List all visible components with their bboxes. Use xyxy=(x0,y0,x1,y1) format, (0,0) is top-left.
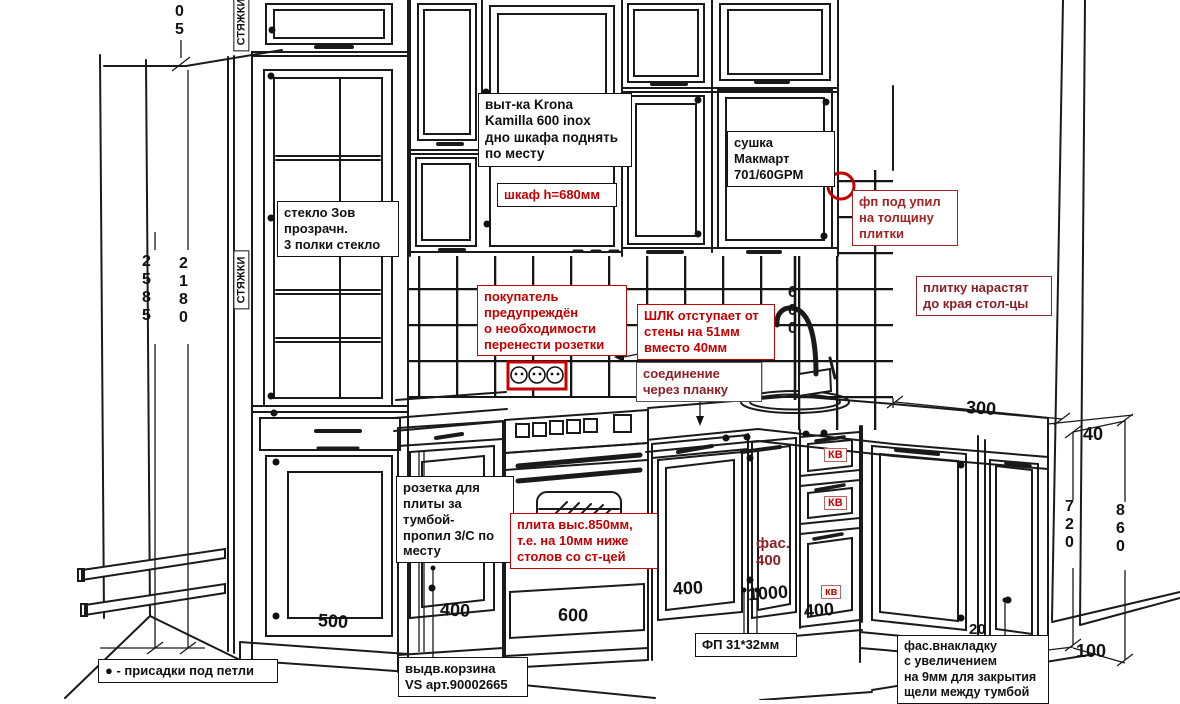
stretcher-label-bottom: СТЯЖКИ xyxy=(233,251,249,310)
note-pullout-basket: выдв.корзина VS арт.90002665 xyxy=(398,657,528,697)
note-stove-height: плита выс.850мм, т.е. на 10мм ниже столо… xyxy=(510,513,658,569)
socket-icon xyxy=(508,362,566,389)
note-shlk-offset: ШЛК отступает от стены на 51мм вместо 40… xyxy=(637,304,775,360)
note-facade-overlay: фас.внакладку с увеличением на 9мм для з… xyxy=(897,635,1049,704)
drawer-kv-2: КВ xyxy=(824,496,847,510)
dim-cab-left-width: 400 xyxy=(439,599,470,622)
label-facade-400: фас. 400 xyxy=(756,536,790,569)
note-hood: выт-ка Krona Kamilla 600 inox дно шкафа … xyxy=(478,93,632,167)
note-glass-shelves: стекло Зов прозрачн. 3 полки стекло xyxy=(277,201,399,257)
note-stove-socket: розетка для плиты за тумбой- пропил 3/С … xyxy=(396,476,514,563)
dim-cab-right-width: 400 xyxy=(672,577,703,600)
dim-total-left: 2585 xyxy=(140,253,153,325)
note-fp-trim: фп под упил на толщину плитки xyxy=(852,190,958,246)
note-buyer-warning: покупатель предупреждён о необходимости … xyxy=(477,285,627,356)
drawer-kv-3: кв xyxy=(821,585,841,599)
drawer-kv-1: КВ xyxy=(824,448,847,462)
note-fp-profile: ФП 31*32мм xyxy=(695,633,797,657)
note-dryer: сушка Макмарт 701/60GPM xyxy=(727,131,835,187)
stretcher-label-top: СТЯЖКИ xyxy=(233,0,249,51)
dim-total-right: 860 xyxy=(1114,502,1127,556)
note-joint-strip: соединение через планку xyxy=(636,362,762,402)
note-hood-height: шкаф h=680мм xyxy=(497,183,617,207)
dim-counter-depth: 300 xyxy=(965,397,996,420)
dim-pantry-width: 500 xyxy=(317,610,348,633)
dim-stove-width: 600 xyxy=(558,604,589,626)
hinge-legend: ● - присадки под петли xyxy=(98,659,278,683)
dim-top-offset: 05 xyxy=(173,3,186,39)
note-tile-extend: плитку нарастят до края стол-цы xyxy=(916,276,1052,316)
dim-base-height: 720 xyxy=(1063,498,1076,552)
dim-drawers-width: 400 xyxy=(803,599,834,622)
dim-gap-top: 40 xyxy=(1083,424,1103,445)
dim-inner-left: 2180 xyxy=(177,255,190,327)
dim-splash-height: 600 xyxy=(786,284,799,338)
dim-plinth-height: 100 xyxy=(1076,641,1106,662)
dim-corner-width: 1000 xyxy=(747,582,788,606)
